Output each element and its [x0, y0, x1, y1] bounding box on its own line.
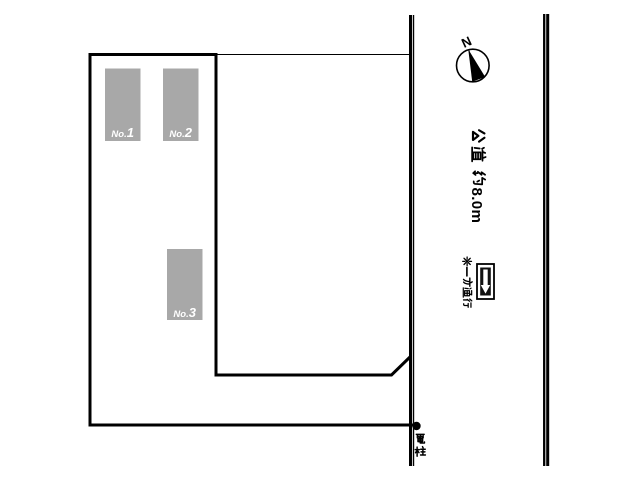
svg-text:8.0m: 8.0m [468, 187, 485, 223]
